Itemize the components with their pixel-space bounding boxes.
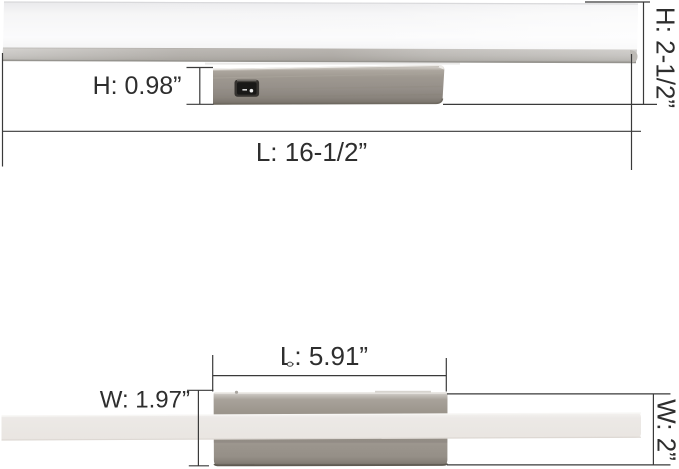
svg-text:L: 16-1/2”: L: 16-1/2” [256, 137, 367, 167]
svg-text:H: 0.98”: H: 0.98” [93, 72, 182, 100]
svg-text:L: 5.91”: L: 5.91” [280, 341, 368, 371]
svg-text:W: 1.97”: W: 1.97” [100, 387, 190, 414]
svg-text:W: 2”: W: 2” [652, 399, 679, 461]
svg-text:H: 2-1/2”: H: 2-1/2” [651, 7, 679, 108]
